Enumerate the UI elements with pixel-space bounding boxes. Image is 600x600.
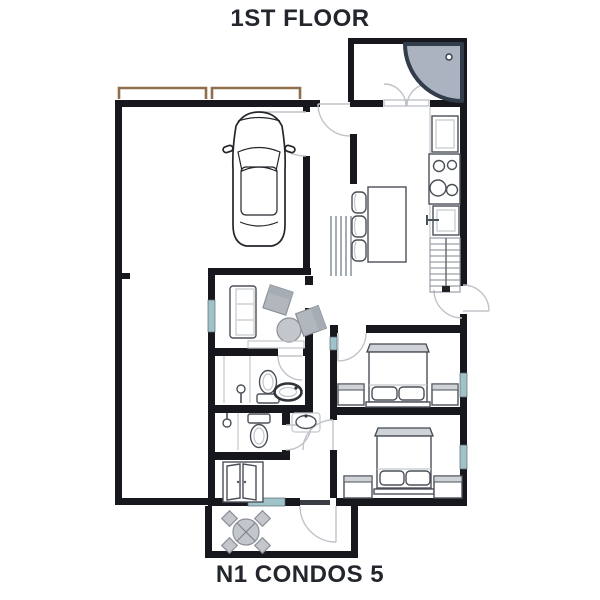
bed (366, 344, 430, 407)
floor-plan-drawing (0, 0, 600, 600)
porch-door (300, 500, 336, 542)
nightstand (432, 384, 458, 405)
wardrobe (223, 462, 263, 502)
bathroom-sink (275, 384, 302, 401)
bedroom1-door (338, 333, 366, 361)
sofa (230, 286, 256, 338)
shower-drain (446, 54, 452, 60)
dining-chair (352, 192, 366, 213)
bathroom-1 (224, 356, 302, 403)
bathroom-2 (223, 413, 270, 450)
car (222, 112, 295, 246)
armchair (263, 285, 293, 315)
nightstand (344, 476, 372, 498)
window (460, 445, 467, 469)
dining-chair (352, 240, 366, 261)
bedroom-2 (344, 428, 462, 498)
nightstand (338, 384, 364, 405)
garage-door-markers (119, 88, 300, 99)
window (460, 373, 467, 397)
shower-fixture (237, 385, 245, 403)
stove (429, 154, 460, 204)
shower-fixture (223, 413, 231, 427)
patio-chair (222, 538, 238, 554)
patio-chair (255, 511, 271, 527)
bedroom-1 (338, 344, 458, 407)
patio-table (233, 519, 259, 545)
kitchen (427, 107, 460, 238)
dining-set (352, 187, 406, 262)
porch (222, 511, 271, 554)
coffee-table (277, 318, 301, 342)
corner-shower (405, 44, 462, 101)
dining-chair (352, 216, 366, 237)
bed (374, 428, 434, 494)
window (330, 337, 337, 350)
toilet (248, 414, 270, 448)
tv-console (248, 341, 304, 348)
front-door (318, 104, 350, 136)
kitchen-sink (427, 206, 459, 235)
partition-screen (331, 216, 351, 276)
fridge (432, 116, 458, 152)
nightstand (434, 476, 462, 498)
stairs (430, 238, 460, 292)
floor-plan-page: 1ST FLOOR N1 CONDOS 5 (0, 0, 600, 600)
patio-chair (255, 538, 271, 554)
window (208, 300, 215, 332)
bathroom1-door (278, 356, 302, 380)
patio-chair (222, 511, 238, 527)
hall-vanity-sink (292, 413, 320, 432)
dining-table (368, 187, 406, 262)
